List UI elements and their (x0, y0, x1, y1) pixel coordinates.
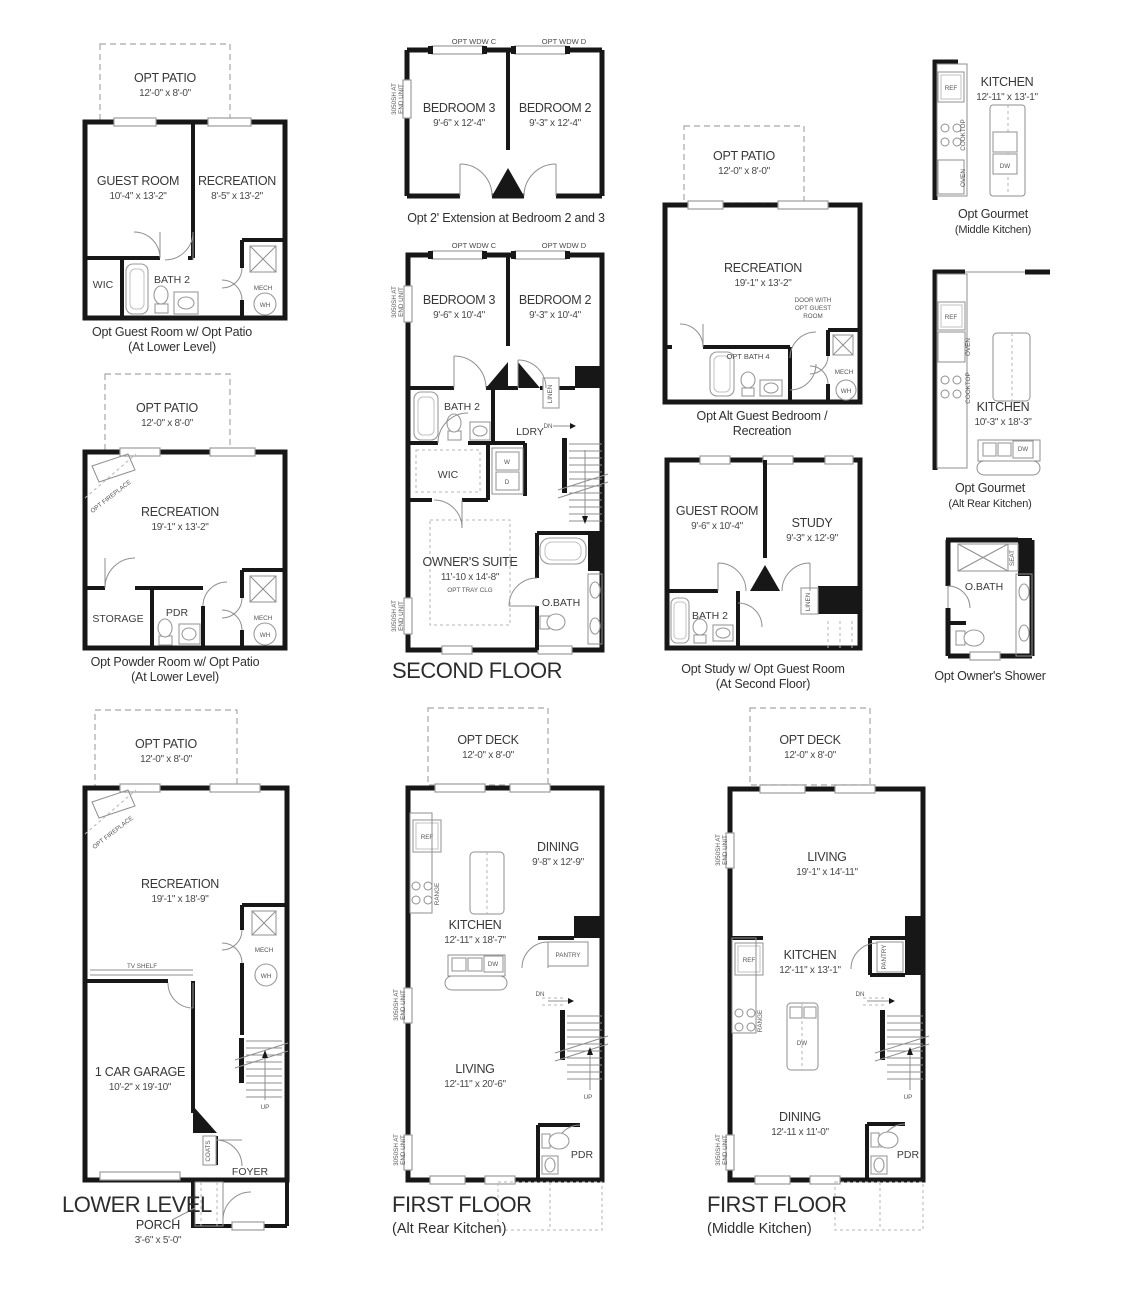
toilet (158, 619, 172, 645)
ref-label: REF (743, 957, 756, 964)
mech-unit (250, 576, 276, 602)
window-note: 3050SH AT (391, 286, 398, 318)
room-label: BATH 2 (444, 401, 480, 413)
room-label: OPT PATIO (134, 71, 196, 85)
room-label: LIVING (807, 850, 846, 864)
ref-label: REF (945, 314, 958, 321)
window-label: OPT WDW C (452, 241, 497, 250)
room-dims: 9'-3" x 10'-4" (529, 310, 581, 321)
room-dims: 12'-11" x 18'-7" (444, 935, 506, 946)
room-label: KITCHEN (977, 400, 1030, 414)
caption: Opt 2' Extension at Bedroom 2 and 3 (407, 211, 605, 225)
room-label: OPT DECK (779, 733, 841, 747)
door-arcs (134, 232, 242, 300)
sink (179, 624, 200, 644)
room-label: PDR (571, 1149, 594, 1161)
room-label: WIC (438, 469, 459, 481)
mech-label: MECH (255, 947, 274, 954)
window-note: END UNIT (400, 990, 407, 1020)
room-dims: 19'-1" x 13'-2" (734, 278, 792, 289)
room-dims: 12'-0" x 8'-0" (139, 88, 191, 99)
plan-first-floor-middle-kitchen: OPT DECK 12'-0" x 8'-0" REF RANGE DW PAN… (705, 698, 940, 1263)
room-dims: 12'-11" x 20'-6" (444, 1079, 506, 1090)
mech-label: MECH (254, 285, 273, 292)
window-note: END UNIT (722, 1135, 729, 1165)
owner-bathtub (540, 538, 586, 564)
toilet (741, 372, 755, 396)
window-note: END UNIT (400, 1135, 407, 1165)
cooktop (941, 376, 961, 398)
sink-counter (977, 440, 1040, 475)
window-label: OPT WDW D (542, 241, 587, 250)
plan-opt-guest-room-lower: OPT PATIO 12'-0" x 8'-0" GUEST ROOM 10'-… (60, 38, 300, 356)
window-note: END UNIT (398, 601, 405, 631)
stairs (235, 1038, 288, 1100)
pantry-label: PANTRY (881, 944, 888, 970)
room-label: BEDROOM 2 (519, 101, 592, 115)
plan-lower-level: OPT PATIO 12'-0" x 8'-0" OPT FIREPLACE T… (60, 698, 310, 1258)
window-note: 3050SH AT (391, 83, 398, 115)
plan-opt-gourmet-alt-rear-kitchen: REF OVEN COOKTOP DW KITCHEN 10'-3" x 18'… (925, 258, 1125, 520)
washer-label: W (504, 459, 510, 466)
plan-opt-owners-shower: SEAT O.BATH Opt Owner's Shower (928, 528, 1068, 693)
room-note: OPT TRAY CLG (447, 587, 492, 594)
plan-opt-gourmet-middle-kitchen: REF COOKTOP OVEN DW KITCHEN 12'-11" x 13… (925, 48, 1125, 243)
room-label: RECREATION (724, 261, 802, 275)
room-dims: 3'-6" x 5'-0" (135, 1235, 182, 1246)
floor-plan-sheet: OPT PATIO 12'-0" x 8'-0" GUEST ROOM 10'-… (0, 0, 1125, 1295)
dn-label: DN (855, 991, 865, 998)
room-label: PORCH (136, 1218, 180, 1232)
window-note: END UNIT (398, 84, 405, 114)
room-label: DINING (779, 1110, 821, 1124)
plan-opt-study-guest-room: LINEN GUEST ROOM 9'-6" x 10'-4" STUDY 9'… (660, 443, 885, 698)
door-note: OPT GUEST (795, 305, 831, 312)
room-dims: 12'-11" x 13'-1" (976, 92, 1038, 103)
mech-unit (250, 246, 276, 272)
caption: Opt Gourmet (958, 207, 1029, 221)
room-label: FOYER (232, 1166, 269, 1178)
toilet (542, 1133, 569, 1149)
dashed-stair-lines (828, 621, 852, 648)
room-dims: 10'-3" x 18'-3" (974, 417, 1032, 428)
caption: Opt Owner's Shower (934, 669, 1045, 683)
caption: Opt Powder Room w/ Opt Patio (91, 655, 260, 669)
room-label: STORAGE (92, 613, 143, 625)
toilet (956, 630, 984, 646)
caption: Recreation (733, 424, 792, 438)
fireplace-label: OPT FIREPLACE (89, 479, 132, 515)
dn-arrow (553, 423, 576, 429)
fireplace-label: OPT FIREPLACE (91, 815, 134, 851)
patio-outline (684, 126, 804, 203)
caption: Opt Gourmet (955, 481, 1026, 495)
door-note: ROOM (803, 313, 823, 320)
up-label: UP (584, 1094, 593, 1101)
sink (174, 292, 198, 314)
sink (542, 1156, 558, 1174)
up-label: UP (261, 1104, 270, 1111)
door-arcs (522, 942, 580, 1149)
dw-label: DW (797, 1040, 808, 1047)
room-dims: 8'-5" x 13'-2" (211, 191, 263, 202)
window-note: 3050SH AT (393, 989, 400, 1021)
cooktop-label: COOKTOP (965, 372, 972, 403)
mech-label: MECH (254, 615, 273, 622)
dn-arrow (542, 998, 574, 1005)
room-label: BEDROOM 2 (519, 293, 592, 307)
range-label: RANGE (434, 883, 441, 905)
dn-arrow (863, 998, 895, 1005)
room-dims: 9'-6" x 10'-4" (433, 310, 485, 321)
room-dims: 19'-1" x 18'-9" (151, 894, 209, 905)
dw-label: DW (1018, 446, 1029, 453)
room-label: KITCHEN (449, 918, 502, 932)
caption: (Middle Kitchen) (955, 224, 1031, 236)
room-dims: 9'-3" x 12'-9" (786, 533, 838, 544)
fireplace (85, 790, 136, 834)
room-label: RECREATION (141, 877, 219, 891)
room-label: OPT PATIO (713, 149, 775, 163)
room-dims: 19'-1" x 13'-2" (151, 522, 209, 533)
room-label: PDR (897, 1149, 920, 1161)
room-label: KITCHEN (784, 948, 837, 962)
tv-shelf-label: TV SHELF (127, 963, 157, 970)
plan-title: FIRST FLOOR (392, 1192, 532, 1217)
window-label: OPT WDW C (452, 37, 497, 46)
mech-label: MECH (835, 369, 854, 376)
room-dims: 9'-8" x 12'-9" (532, 857, 584, 868)
plan-opt-extension-bedrooms: OPT WDW C OPT WDW D 3050SH AT END UNIT B… (390, 38, 640, 230)
caption: (Alt Rear Kitchen) (948, 498, 1031, 510)
room-label: KITCHEN (981, 75, 1034, 89)
plan-subtitle: (Middle Kitchen) (707, 1221, 812, 1237)
island (993, 333, 1030, 401)
room-label: RECREATION (198, 174, 276, 188)
room-dims: 12'-0" x 8'-0" (141, 418, 193, 429)
room-dims: 12'-0" x 8'-0" (784, 750, 836, 761)
dryer-label: D (505, 479, 510, 486)
window-note: 3050SH AT (393, 1134, 400, 1166)
room-label: 1 CAR GARAGE (95, 1065, 185, 1079)
caption: (At Second Floor) (716, 677, 811, 691)
room-label: BATH 2 (692, 610, 728, 622)
dw-label: DW (488, 961, 499, 968)
room-dims: 9'-6" x 10'-4" (691, 521, 743, 532)
bathtub (414, 392, 438, 440)
fireplace (85, 454, 136, 498)
window-note: 3050SH AT (715, 834, 722, 866)
caption: (At Lower Level) (131, 670, 219, 684)
window-label: OPT WDW D (542, 37, 587, 46)
plan-opt-alt-guest-bedroom: OPT PATIO 12'-0" x 8'-0" RECREATION 19'-… (660, 118, 885, 440)
room-label: OPT PATIO (136, 401, 198, 415)
sink (760, 380, 782, 396)
plan-first-floor-alt-rear-kitchen: OPT DECK 12'-0" x 8'-0" REF RANGE DW PAN… (390, 698, 640, 1263)
room-label: WIC (93, 279, 114, 291)
door-note: DOOR WITH (795, 297, 832, 304)
room-label: OPT BATH 4 (726, 352, 769, 361)
room-dims: 12'-11 x 11'-0" (771, 1127, 829, 1138)
room-label: OWNER'S SUITE (422, 555, 517, 569)
wh-label: WH (260, 632, 271, 639)
toilet (154, 286, 168, 313)
room-label: PDR (166, 607, 189, 619)
room-dims: 9'-6" x 12'-4" (433, 118, 485, 129)
room-label: BATH 2 (154, 274, 190, 286)
room-label: STUDY (792, 516, 834, 530)
island (990, 105, 1025, 196)
room-label: O.BATH (965, 581, 1003, 593)
toilet (447, 414, 461, 440)
cooktop-label: COOKTOP (960, 119, 967, 150)
plan-title: FIRST FLOOR (707, 1192, 847, 1217)
coats-label: COATS (205, 1140, 212, 1161)
plan-title: SECOND FLOOR (392, 658, 562, 683)
window-note: END UNIT (398, 287, 405, 317)
window-note: END UNIT (722, 835, 729, 865)
room-dims: 12'-0" x 8'-0" (462, 750, 514, 761)
plan-opt-powder-room-lower: OPT PATIO 12'-0" x 8'-0" OPT FIREPLACE R… (60, 366, 300, 686)
room-label: OPT DECK (457, 733, 519, 747)
room-dims: 11'-10 x 14'-8" (441, 572, 500, 583)
toilet (693, 619, 707, 643)
mech-unit (833, 335, 853, 355)
room-dims: 12'-0" x 8'-0" (140, 754, 192, 765)
porch-extension (835, 1182, 923, 1230)
room-dims: 9'-3" x 12'-4" (529, 118, 581, 129)
bathtub (126, 264, 148, 314)
oven (938, 332, 965, 362)
island (470, 852, 504, 914)
caption: (At Lower Level) (128, 340, 216, 354)
window-note: 3050SH AT (715, 1134, 722, 1166)
room-label: DINING (537, 840, 579, 854)
room-label: BEDROOM 3 (423, 293, 496, 307)
bathtub (671, 598, 689, 643)
wh-label: WH (841, 388, 852, 395)
range-label: RANGE (757, 1010, 764, 1032)
room-label: LDRY (516, 426, 544, 438)
wh-label: WH (261, 973, 272, 980)
room-label: BEDROOM 3 (423, 101, 496, 115)
caption: Opt Alt Guest Bedroom / (697, 409, 829, 423)
caption: Opt Guest Room w/ Opt Patio (92, 325, 252, 339)
plan-title: LOWER LEVEL (62, 1192, 212, 1217)
washer-dryer (492, 448, 523, 494)
garage-door (100, 1172, 180, 1180)
room-label: OPT PATIO (135, 737, 197, 751)
seat-label: SEAT (1009, 550, 1016, 566)
cooktop (941, 124, 961, 146)
oven-label: OVEN (965, 338, 972, 356)
room-dims: 12'-11" x 13'-1" (779, 965, 841, 976)
room-label: O.BATH (542, 597, 580, 609)
caption: Opt Study w/ Opt Guest Room (681, 662, 844, 676)
plan-subtitle: (Alt Rear Kitchen) (392, 1221, 506, 1237)
window-note: 3050SH AT (391, 600, 398, 632)
linen-label: LINEN (805, 592, 812, 611)
up-label: UP (904, 1094, 913, 1101)
tv-shelf (90, 970, 193, 975)
room-dims: 10'-4" x 13'-2" (109, 191, 167, 202)
plan-second-floor: LINEN W D OPT WDW C OPT WDW D 3050SH AT … (390, 238, 640, 686)
room-dims: 19'-1" x 14'-11" (796, 867, 858, 878)
owner-toilet (540, 614, 565, 630)
dn-label: DN (543, 423, 553, 430)
wh-label: WH (260, 302, 271, 309)
range (412, 882, 432, 904)
ref-label: REF (945, 85, 958, 92)
room-dims: 10'-2" x 19'-10" (109, 1082, 172, 1093)
room-label: RECREATION (141, 505, 219, 519)
mech-unit (252, 911, 276, 935)
room-label: GUEST ROOM (97, 174, 179, 188)
sink (713, 625, 733, 641)
linen-label: LINEN (547, 384, 554, 403)
sink (871, 1156, 887, 1174)
dw-label: DW (1000, 163, 1011, 170)
room-label: GUEST ROOM (676, 504, 758, 518)
island (787, 1003, 818, 1070)
pantry-label: PANTRY (556, 952, 582, 959)
room-label: LIVING (455, 1062, 494, 1076)
toilet (871, 1132, 898, 1148)
room-dims: 12'-0" x 8'-0" (718, 166, 770, 177)
range (735, 1009, 755, 1031)
oven-label: OVEN (960, 169, 967, 187)
sink (470, 422, 490, 440)
dn-label: DN (535, 991, 545, 998)
